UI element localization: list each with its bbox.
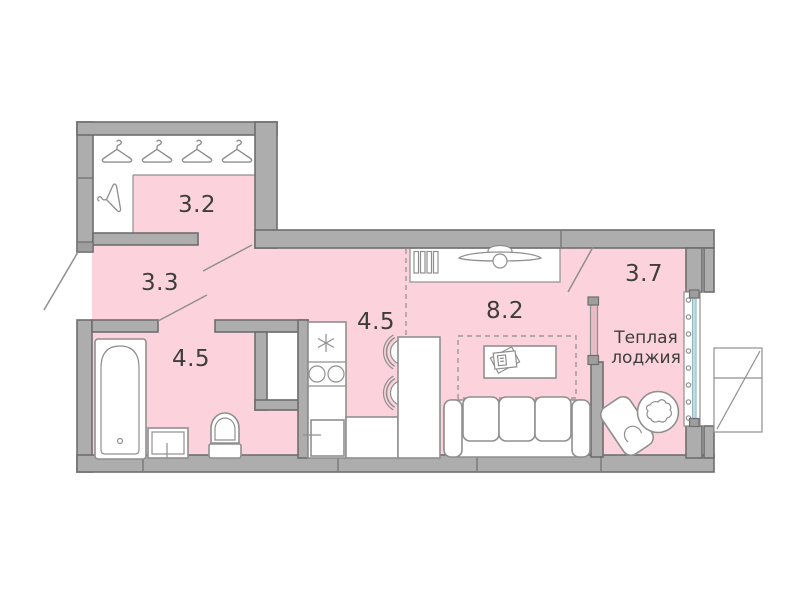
wall-top-main: [255, 230, 714, 248]
wall-pillar-bottom-outer: [704, 426, 714, 458]
loggia-area-label: 3.7: [625, 261, 663, 287]
kitchen-counter-bottom: [346, 417, 398, 458]
window-glass: [693, 297, 697, 419]
plant-table-icon: [638, 392, 679, 433]
glass-door-cap: [588, 356, 599, 365]
window-frame-cap: [690, 419, 700, 427]
balcony-box: [714, 348, 762, 432]
wall-kitchen-bathroom: [298, 320, 308, 458]
window-glazing: [684, 290, 700, 427]
wall-pillar-top-inner: [686, 248, 702, 292]
loggia-name-line2: лоджия: [611, 348, 681, 368]
wall-closet-right: [255, 122, 277, 248]
sofa-icon: [444, 397, 590, 457]
bathroom-area-label: 4.5: [172, 346, 210, 372]
magazine-icon: [498, 355, 507, 366]
window-frame-cap: [690, 290, 700, 298]
coffee-table-icon: [484, 346, 556, 378]
toilet-icon: [209, 413, 241, 458]
kitchen-area-label: 4.5: [357, 309, 395, 335]
wall-pillar-top-outer: [704, 248, 714, 292]
wall-left-lower: [77, 320, 92, 472]
wall-bathroom-top-right: [215, 320, 308, 332]
wall-pillar-bottom-inner: [686, 426, 702, 458]
ventilation-shaft: [267, 332, 298, 400]
wall-bathroom-top-left: [92, 320, 158, 332]
floor-plan: 3.2 3.3 4.5 4.5 8.2 3.7 Теплая лоджия: [0, 0, 800, 600]
bathtub-icon: [95, 339, 146, 459]
wall-closet-top: [77, 122, 277, 135]
wardrobe-area-label: 3.2: [178, 192, 216, 218]
hallway-area-label: 3.3: [141, 270, 179, 296]
entrance-door-frame-cap: [77, 242, 93, 252]
entrance-door-swing: [44, 252, 78, 310]
loggia-name-line1: Теплая: [613, 328, 677, 348]
glass-door-cap: [588, 297, 599, 305]
sink-icon: [148, 428, 188, 458]
wall-closet-bottom: [93, 233, 198, 245]
wall-closet-left: [77, 122, 93, 252]
bar-counter: [398, 337, 440, 458]
hallway-floor: [92, 245, 300, 322]
wall-shaft-left: [255, 332, 267, 410]
glass-door-panel: [591, 303, 598, 359]
wall-loggia-partition: [591, 362, 603, 457]
living-room-area-label: 8.2: [486, 298, 524, 324]
